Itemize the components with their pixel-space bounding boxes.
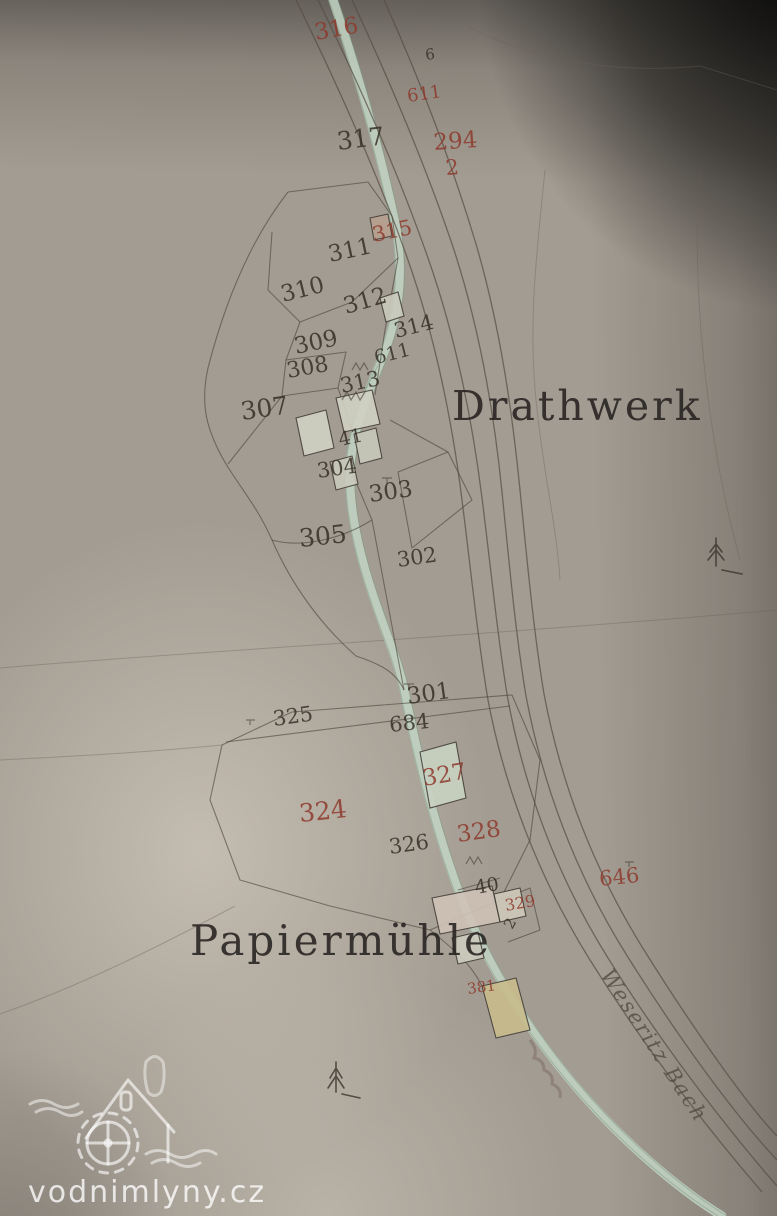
parcel-number-red: 329 xyxy=(503,891,536,915)
parcel-number-red: 324 xyxy=(298,794,348,828)
cadastral-map-photo: 6 317 311 310 312 309 611 308 313 314 30… xyxy=(0,0,777,1216)
parcel-number-red: 2 xyxy=(445,155,460,180)
parcel-number: 6 xyxy=(424,45,436,64)
stream-name-label: Weseritz Bach xyxy=(596,965,713,1127)
parcel-number: 310 xyxy=(278,272,327,308)
watermark-text: vodnimlyny.cz xyxy=(28,1175,266,1210)
parcel-number-red: 328 xyxy=(455,816,502,848)
tree-symbol-east xyxy=(708,538,742,574)
parcel-number-red: 316 xyxy=(313,13,361,46)
parcel-number: 312 xyxy=(340,283,389,320)
parcel-number-red: 294 xyxy=(433,127,479,156)
smoke-icon xyxy=(145,1057,164,1096)
parcel-number: 317 xyxy=(335,121,386,156)
parcel-number: 301 xyxy=(405,678,452,710)
parcel-number: 307 xyxy=(239,391,290,426)
parcel-number: 305 xyxy=(298,519,348,553)
parcel-number: 308 xyxy=(285,352,331,384)
parcel-number: 611 xyxy=(372,339,413,369)
road-lines xyxy=(296,0,777,1192)
parcel-number: 303 xyxy=(367,476,414,508)
parcel-number: 302 xyxy=(395,543,438,572)
parcel-number: 684 xyxy=(388,709,430,737)
parcel-number: 325 xyxy=(271,702,314,731)
place-label-papiermuehle: Papiermühle xyxy=(190,916,492,965)
tree-symbol-south xyxy=(328,1062,360,1098)
map-drawing: 6 317 311 310 312 309 611 308 313 314 30… xyxy=(0,0,777,1216)
parcel-numbers-black: 6 317 311 310 312 309 611 308 313 314 30… xyxy=(239,45,520,932)
place-label-drathwerk: Drathwerk xyxy=(452,382,703,430)
waves-icon xyxy=(30,1101,82,1116)
parcel-number: 311 xyxy=(326,233,374,268)
watermark-logo: vodnimlyny.cz xyxy=(28,1057,266,1211)
parcel-number-red: 611 xyxy=(406,81,443,107)
parcel-number-red: 646 xyxy=(598,863,640,891)
parcel-number: 40 xyxy=(473,873,501,899)
water-wheel-icon xyxy=(78,1113,138,1173)
parcel-number: 326 xyxy=(387,830,430,859)
